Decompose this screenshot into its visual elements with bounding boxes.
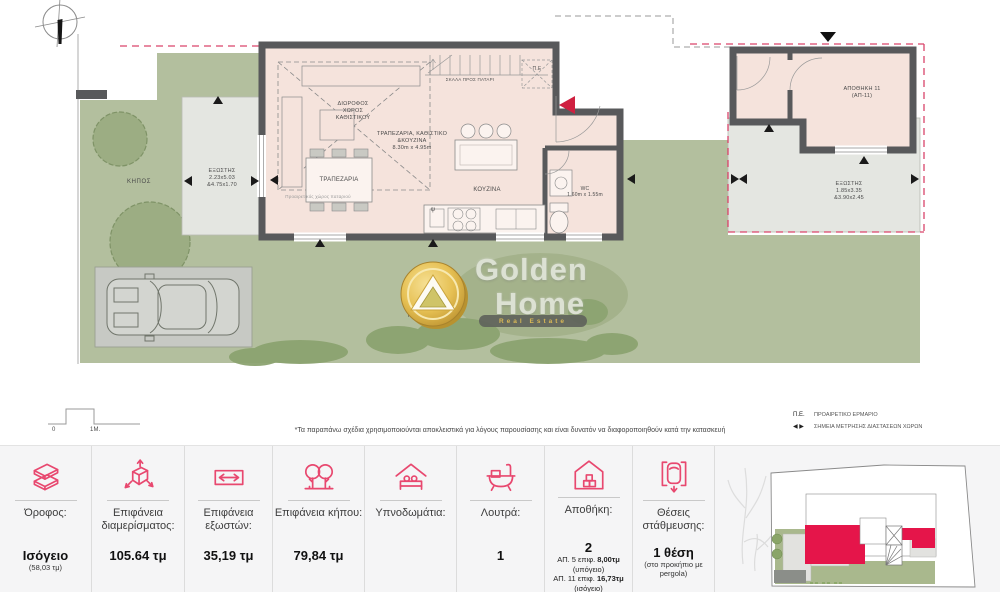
key-plan xyxy=(715,446,1000,592)
logo-word-golden: Golden xyxy=(475,252,588,288)
scale-zero-label: 0 xyxy=(52,427,56,435)
scale-one-label: 1Μ. xyxy=(90,427,101,435)
key-plan-tree-sketch xyxy=(728,468,771,571)
stat-storage-detail-1: ΑΠ. 5 επιφ. 8,00τμ xyxy=(557,555,620,565)
garden-trees-icon xyxy=(300,456,338,498)
label-garden-left: ΚΗΠΟΣ xyxy=(127,179,151,187)
kitchen-counter xyxy=(424,205,545,233)
stat-parking-note: (στο προκήπιο με pergola) xyxy=(644,560,703,578)
terrace-left xyxy=(182,97,262,235)
stat-storage-detail-2: (υπόγειο) xyxy=(573,565,604,575)
label-balcony-right: ΕΞΩΣΤΗΣ 1.85x3.35 &3.90x2.45 xyxy=(834,181,864,202)
bathtub-icon xyxy=(482,456,520,498)
stat-baths-label: Λουτρά: xyxy=(481,507,521,539)
label-double-height: ΔΙΩΡΟΦΟΣ ΧΩΡΟΣ ΚΑΘΙΣΤΙΚΟΥ xyxy=(336,101,371,122)
floor-plan-area: ΚΗΠΟΣ ΕΞΩΣΤΗΣ 2.23x5.03 &4.75x1.70 ΔΙΩΡΟ… xyxy=(0,0,1000,445)
label-storage-room: ΑΠΟΘΗΚΗ 11 (ΑΠ-11) xyxy=(843,86,880,100)
label-stairs: ΣΚΑΛΑ ΠΡΟΣ ΠΑΤΑΡΙ xyxy=(446,77,495,83)
plan-footnote: *Τα παραπάνω σχέδια χρησιμοποιούνται απο… xyxy=(295,427,726,434)
floor-plan-drawing xyxy=(0,0,1000,445)
compass-icon xyxy=(35,0,85,47)
stat-storage-detail-4: (ισόγειο) xyxy=(574,584,602,592)
stat-garden-area-value: 79,84 τμ xyxy=(294,548,344,563)
stat-storage-label: Αποθήκη: xyxy=(565,504,613,534)
stat-parking-label: Θέσεις στάθμευσης: xyxy=(643,507,705,539)
label-dining: ΤΡΑΠΕΖΑΡΙΑ xyxy=(320,177,359,185)
stat-storage-detail-3: ΑΠ. 11 επιφ. 16,73τμ xyxy=(553,574,623,584)
stat-balcony-area: Επιφάνεια εξωστών: 35,19 τμ xyxy=(185,446,273,592)
parking-spot-icon xyxy=(655,456,693,498)
stat-bedrooms: Υπνοδωμάτια: xyxy=(365,446,457,592)
golden-home-logo: Golden Home Real Estate xyxy=(393,246,643,346)
stat-parking-value: 1 θέση xyxy=(653,545,694,560)
stat-apartment-area-label: Επιφάνεια διαμερίσματος: xyxy=(101,507,174,539)
stat-baths: Λουτρά: 1 xyxy=(457,446,545,592)
stat-floor: Όροφος: Ισόγειο (58,03 τμ) xyxy=(0,446,92,592)
stat-floor-value: Ισόγειο xyxy=(23,548,68,563)
kitchen-island xyxy=(455,124,517,170)
legend-pe-abbr: Π.Ε. xyxy=(793,412,807,418)
label-cupboard: Π.Ε xyxy=(533,66,542,72)
key-plan-parking xyxy=(774,570,806,583)
label-kitchen: ΚΟΥΖΙΝΑ xyxy=(473,187,500,195)
stat-apartment-area-value: 105.64 τμ xyxy=(109,548,166,563)
plan-legend: Π.Ε. ΠΡΟΑΙΡΕΤΙΚΟ ΕΡΜΑΡΙΟ ◀ ▶ ΣΗΜΕΙΑ ΜΕΤΡ… xyxy=(793,412,922,435)
stat-storage: Αποθήκη: 2 ΑΠ. 5 επιφ. 8,00τμ (υπόγειο) … xyxy=(545,446,633,592)
legend-pe-text: ΠΡΟΑΙΡΕΤΙΚΟ ΕΡΜΑΡΙΟ xyxy=(814,412,878,418)
car-top-view xyxy=(107,274,239,341)
stat-floor-note: (58,03 τμ) xyxy=(29,563,62,572)
storage-entry-marker xyxy=(820,32,836,42)
label-wc: WC 1.60m x 1.55m xyxy=(567,186,603,199)
balcony-area-icon xyxy=(210,456,248,498)
floor-plan-page: ΚΗΠΟΣ ΕΞΩΣΤΗΣ 2.23x5.03 &4.75x1.70 ΔΙΩΡΟ… xyxy=(0,0,1000,592)
stats-bar: Όροφος: Ισόγειο (58,03 τμ) Επιφάνεια δια… xyxy=(0,445,1000,592)
label-kitchen-sink: ψ xyxy=(431,207,435,215)
legend-arrows-text: ΣΗΜΕΙΑ ΜΕΤΡΗΣΗΣ ΔΙΑΣΤΑΣΕΩΝ ΧΩΡΩΝ xyxy=(814,424,922,430)
key-plan-drawing xyxy=(715,446,1000,592)
stat-garden-area-label: Επιφάνεια κήπου: xyxy=(275,507,362,539)
stat-balcony-area-label: Επιφάνεια εξωστών: xyxy=(203,507,253,539)
storage-house-icon xyxy=(570,456,608,495)
scale-bar xyxy=(48,409,140,424)
logo-coin-icon xyxy=(399,258,469,332)
apartment-area-icon xyxy=(119,456,157,498)
stat-baths-value: 1 xyxy=(497,548,504,563)
stat-bedrooms-label: Υπνοδωμάτια: xyxy=(375,507,445,539)
stat-floor-label: Όροφος: xyxy=(24,507,67,539)
label-loft-note: Προαιρετικός χώρος παταριού xyxy=(285,194,351,200)
stat-garden-area: Επιφάνεια κήπου: 79,84 τμ xyxy=(273,446,365,592)
stat-balcony-area-value: 35,19 τμ xyxy=(204,548,254,563)
label-living-block: ΤΡΑΠΕΖΑΡΙΑ, ΚΑΘΙΣΤΙΚΟ &ΚΟΥΖΙΝΑ 8.30m x 4… xyxy=(377,131,447,152)
logo-banner: Real Estate xyxy=(479,315,587,327)
stat-storage-value: 2 xyxy=(585,540,592,555)
overhang-dashed-outline xyxy=(555,16,736,47)
bedroom-icon xyxy=(392,456,430,498)
stat-parking: Θέσεις στάθμευσης: 1 θέση (στο προκήπιο … xyxy=(633,446,715,592)
floor-layers-icon xyxy=(27,456,65,498)
key-plan-stairwell xyxy=(886,526,902,565)
label-balcony-left: ΕΞΩΣΤΗΣ 2.23x5.03 &4.75x1.70 xyxy=(207,168,237,189)
legend-arrows-icon: ◀ ▶ xyxy=(793,423,807,430)
stat-apartment-area: Επιφάνεια διαμερίσματος: 105.64 τμ xyxy=(92,446,185,592)
